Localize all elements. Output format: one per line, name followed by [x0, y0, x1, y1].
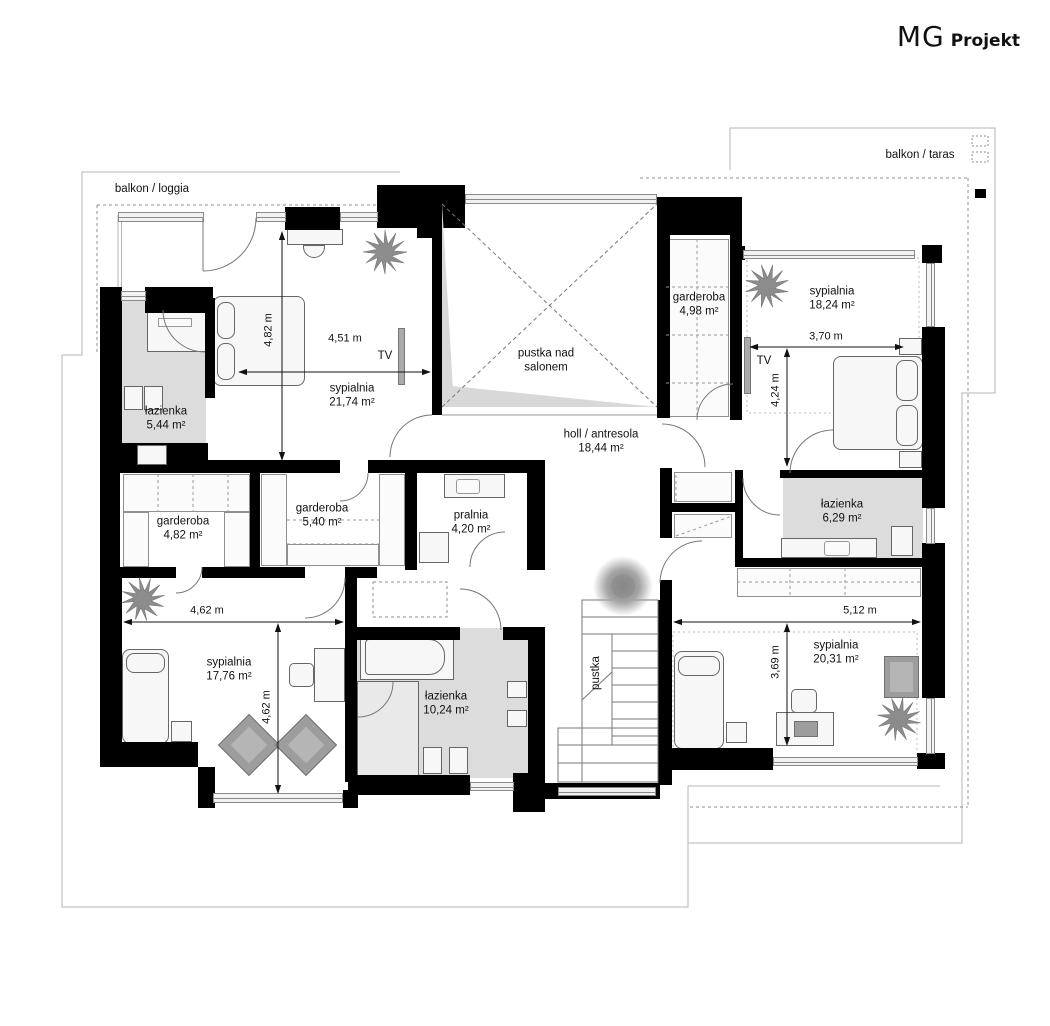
wall	[345, 567, 357, 782]
nightstand	[899, 451, 922, 468]
room-area: 4,98 m²	[673, 305, 725, 319]
dim-label-b3-height: 4,62 m	[261, 690, 274, 724]
wardrobe	[379, 474, 405, 566]
window	[470, 782, 514, 791]
tv-label: TV	[378, 350, 393, 364]
wall	[922, 543, 945, 698]
wall	[100, 460, 340, 473]
desk	[314, 648, 345, 702]
room-label-garderoba-2: garderoba 5,40 m²	[296, 502, 348, 529]
room-area: 5,40 m²	[296, 516, 348, 530]
room-name: łazienka	[423, 690, 468, 704]
room-label-pustka-salon: pustka nad salonem	[518, 347, 574, 374]
floor-plan: balkon / loggia balkon / taras sypialnia…	[0, 0, 1050, 1026]
wall	[660, 580, 672, 602]
room-area: 18,44 m²	[564, 442, 639, 456]
room-area: 4,82 m²	[157, 529, 209, 543]
wall	[377, 185, 465, 228]
wall	[432, 200, 442, 415]
room-label-holl: holl / antresola 18,44 m²	[564, 428, 639, 455]
wall	[100, 567, 176, 578]
window	[773, 757, 918, 766]
tv-label: TV	[757, 355, 772, 369]
room-label-sypialnia-2: sypialnia 18,24 m²	[809, 285, 854, 312]
wall	[368, 460, 432, 473]
room-name: holl / antresola	[564, 428, 639, 442]
window	[558, 787, 656, 796]
wall	[202, 567, 305, 578]
pillow	[126, 653, 165, 673]
desk	[287, 229, 343, 245]
dim-label-b4-width: 5,12 m	[843, 605, 877, 618]
wall	[513, 773, 545, 812]
nightstand	[899, 338, 922, 355]
tv-unit	[744, 337, 751, 394]
washbasin	[456, 479, 480, 494]
washbasin	[507, 710, 527, 727]
room-label-sypialnia-3: sypialnia 17,76 m²	[206, 656, 251, 683]
wardrobe	[666, 239, 729, 417]
void-line2: salonem	[518, 361, 574, 375]
wall	[527, 470, 545, 570]
nightstand	[726, 722, 747, 743]
balcony-right-label: balkon / taras	[885, 149, 954, 163]
window	[213, 793, 343, 803]
wardrobe	[674, 514, 732, 538]
room-label-sypialnia-4: sypialnia 20,31 m²	[813, 639, 858, 666]
laptop	[794, 721, 818, 737]
toilet	[124, 386, 143, 410]
brand-logo-primary: MG	[897, 20, 945, 53]
chair	[303, 245, 325, 258]
dim-label-b3-width: 4,62 m	[190, 605, 224, 618]
toilet	[423, 747, 442, 774]
wall	[405, 470, 417, 570]
tv-unit	[398, 328, 405, 385]
wall	[145, 287, 213, 313]
room-name: garderoba	[296, 502, 348, 516]
brand-logo-secondary: Projekt	[951, 31, 1020, 51]
toilet	[891, 526, 913, 556]
room-area: 10,24 m²	[423, 704, 468, 718]
room-name: łazienka	[821, 498, 863, 512]
room-area: 17,76 m²	[206, 670, 251, 684]
room-area: 18,24 m²	[809, 299, 854, 313]
balcony-left-label: balkon / loggia	[115, 183, 189, 197]
wardrobe	[737, 568, 921, 597]
wardrobe	[287, 544, 379, 566]
wall	[743, 558, 923, 567]
room-area: 20,31 m²	[813, 653, 858, 667]
wardrobe	[261, 474, 287, 566]
window	[743, 250, 915, 259]
room-name: łazienka	[145, 405, 187, 419]
railing-post	[975, 189, 986, 198]
bathtub-basin	[365, 639, 445, 675]
room-name: garderoba	[673, 291, 725, 305]
room-label-lazienka-3: łazienka 10,24 m²	[423, 690, 468, 717]
wall	[735, 470, 743, 567]
wall	[660, 468, 672, 538]
void-over-livingroom	[442, 203, 657, 407]
window	[926, 263, 935, 327]
pouf-top	[890, 662, 913, 692]
dim-label-b2-height: 4,24 m	[770, 373, 783, 407]
room-name: sypialnia	[206, 656, 251, 670]
room-label-lazienka-1: łazienka 5,44 m²	[145, 405, 187, 432]
brand-logo: MGProjekt	[897, 20, 1020, 53]
nightstand	[171, 721, 192, 742]
window	[926, 508, 935, 544]
window	[256, 212, 286, 222]
window	[926, 698, 935, 754]
dim-label-b2-width: 3,70 m	[809, 331, 843, 344]
wall	[348, 775, 470, 795]
room-label-pustka-stairs: pustka	[590, 656, 604, 690]
wall	[100, 742, 198, 767]
shower	[357, 681, 419, 779]
room-name: sypialnia	[813, 639, 858, 653]
room-name: sypialnia	[329, 382, 374, 396]
dim-label-b1-height: 4,82 m	[263, 313, 276, 347]
room-label-sypialnia-1: sypialnia 21,74 m²	[329, 382, 374, 409]
bidet	[449, 747, 468, 774]
room-area: 21,74 m²	[329, 396, 374, 410]
chair	[289, 663, 314, 687]
window	[465, 194, 657, 204]
room-label-garderoba-1: garderoba 4,82 m²	[157, 515, 209, 542]
pillow	[896, 405, 918, 446]
room-label-garderoba-3: garderoba 4,98 m²	[673, 291, 725, 318]
room-area: 4,20 m²	[452, 523, 491, 537]
dim-label-b4-height: 3,69 m	[770, 645, 783, 679]
wardrobe	[123, 474, 250, 512]
room-area: 6,29 m²	[821, 512, 863, 526]
wall	[922, 327, 945, 508]
room-name: garderoba	[157, 515, 209, 529]
drawer	[158, 318, 192, 327]
room-area: 5,44 m²	[145, 419, 187, 433]
room-name: pralnia	[452, 509, 491, 523]
wall	[660, 748, 773, 770]
wall	[100, 287, 122, 463]
wall	[205, 298, 215, 398]
wall	[350, 627, 460, 640]
pillow	[678, 656, 720, 676]
washbasin	[824, 541, 850, 556]
washbasin	[507, 681, 527, 698]
window	[118, 212, 204, 222]
wall	[250, 470, 260, 570]
pillow	[217, 343, 235, 380]
washbasin	[137, 445, 167, 465]
wall	[730, 235, 742, 420]
wall	[917, 753, 945, 769]
wall	[780, 470, 923, 478]
wall	[528, 628, 545, 790]
wall-chimney	[285, 207, 340, 230]
room-label-lazienka-2: łazienka 6,29 m²	[821, 498, 863, 525]
wardrobe	[674, 472, 732, 502]
wall	[657, 197, 742, 235]
wall	[672, 503, 737, 512]
wardrobe	[123, 512, 149, 567]
room-name: sypialnia	[809, 285, 854, 299]
washing-machine	[419, 532, 449, 563]
staircase	[558, 600, 658, 782]
void-line1: pustka nad	[518, 347, 574, 361]
wall	[922, 245, 942, 263]
wardrobe	[224, 512, 250, 567]
window	[340, 212, 378, 222]
pillow	[217, 302, 235, 339]
dim-label-b1-width: 4,51 m	[328, 333, 362, 346]
wall	[100, 578, 122, 628]
room-label-pralnia: pralnia 4,20 m²	[452, 509, 491, 536]
pillow	[896, 360, 918, 401]
shower-zone	[743, 478, 783, 558]
window	[121, 291, 146, 301]
chair	[791, 689, 817, 713]
wall	[100, 470, 120, 570]
